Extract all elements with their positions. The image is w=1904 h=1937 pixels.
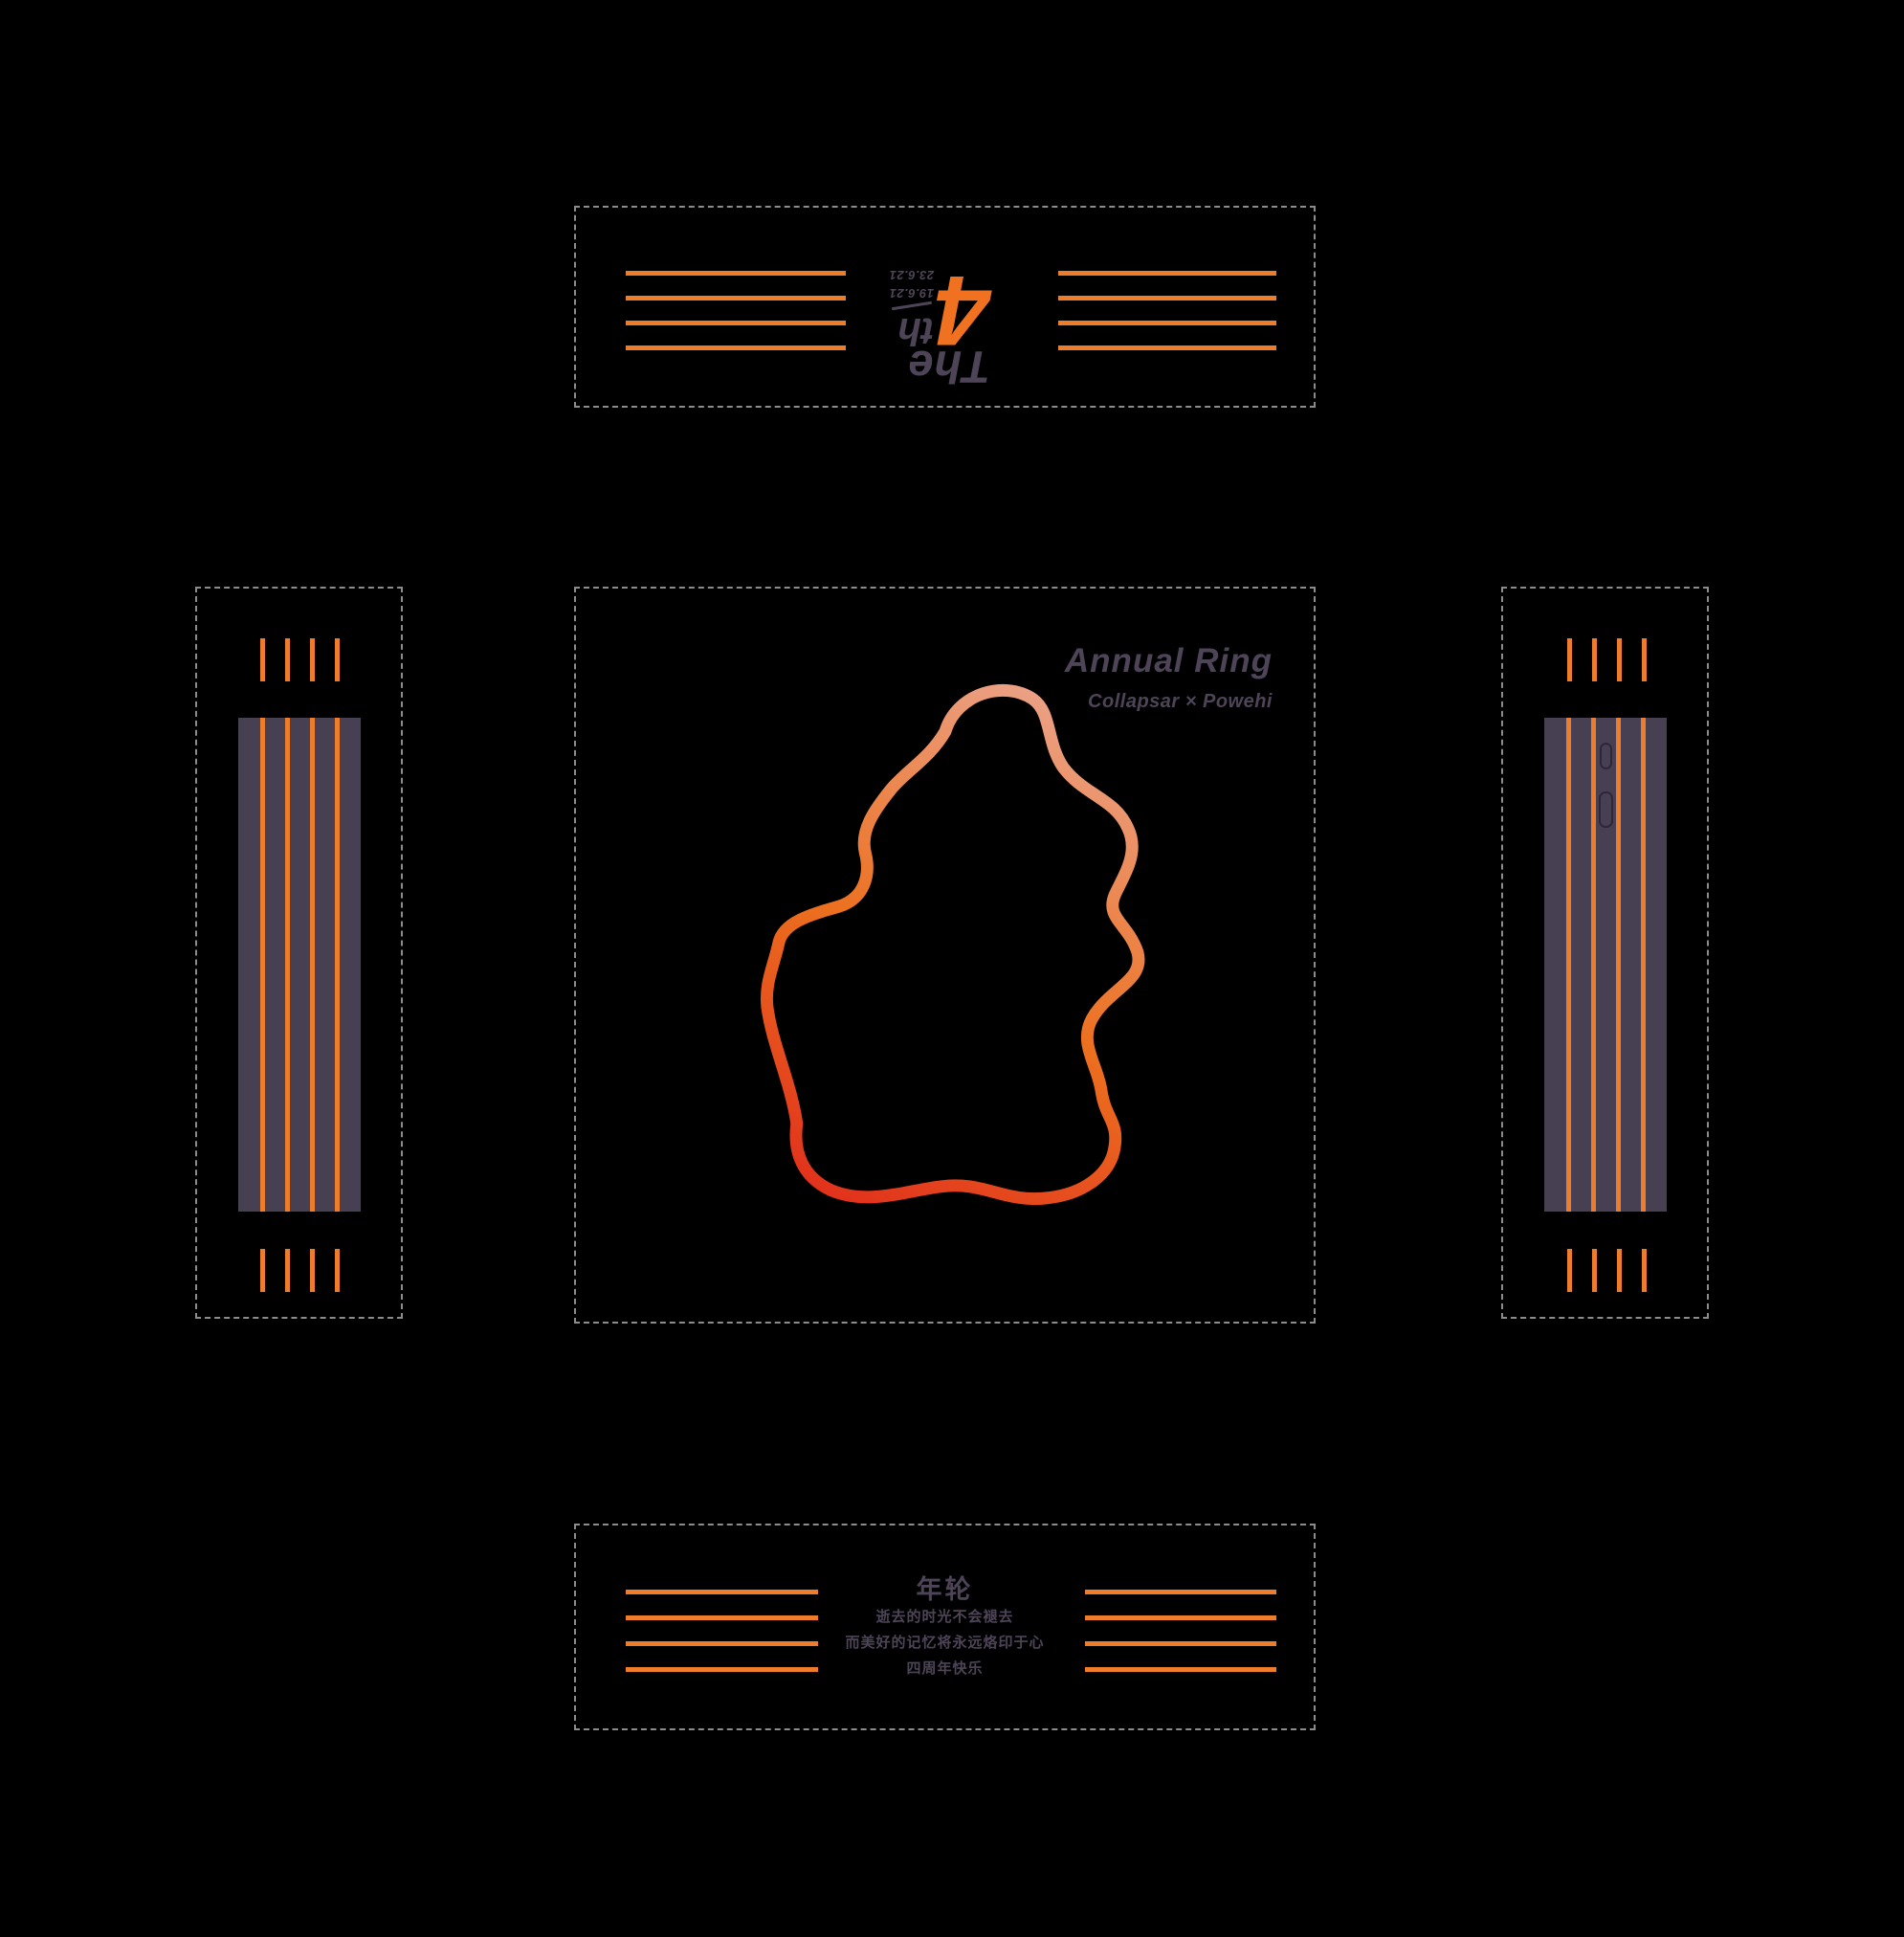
brand-block: The 4 th 19.6.21 23.6.21	[854, 229, 990, 390]
decorative-lines	[626, 271, 846, 350]
spine-bar	[238, 718, 361, 1212]
thumb-slot-large	[1599, 791, 1613, 828]
top-flap: The 4 th 19.6.21 23.6.21	[574, 206, 1316, 408]
tick-marks-bottom	[1567, 1249, 1647, 1292]
spine-stripes	[260, 718, 340, 1212]
artwork-subtitle: Collapsar × Powehi	[1065, 691, 1273, 713]
title-block: Annual Ring Collapsar × Powehi	[1065, 642, 1273, 713]
box-dieline: The 4 th 19.6.21 23.6.21	[0, 0, 1904, 1937]
date-from: 19.6.21	[889, 283, 934, 301]
message-line: 逝去的时光不会褪去	[576, 1604, 1314, 1630]
brand-dates-column: th 19.6.21 23.6.21	[889, 265, 934, 350]
front-panel: Annual Ring Collapsar × Powehi	[574, 587, 1316, 1324]
ring-path	[766, 690, 1139, 1198]
message-line: 四周年快乐	[576, 1656, 1314, 1681]
right-flap	[1501, 587, 1709, 1319]
thumb-slot-small	[1600, 743, 1612, 769]
message-title: 年轮	[576, 1575, 1314, 1604]
tick-marks-top	[1567, 638, 1647, 681]
left-flap	[195, 587, 403, 1319]
message-block: 年轮 逝去的时光不会褪去 而美好的记忆将永远烙印于心 四周年快乐	[576, 1575, 1314, 1681]
tick-marks-bottom	[260, 1249, 340, 1292]
tick-marks-top	[260, 638, 340, 681]
bottom-flap: 年轮 逝去的时光不会褪去 而美好的记忆将永远烙印于心 四周年快乐	[574, 1524, 1316, 1730]
date-to: 23.6.21	[889, 265, 934, 283]
artwork-title: Annual Ring	[1065, 642, 1273, 680]
brand-row: 4 th 19.6.21 23.6.21	[854, 265, 990, 350]
message-line: 而美好的记忆将永远烙印于心	[576, 1630, 1314, 1656]
date-divider	[892, 301, 932, 311]
brand-number: 4	[935, 265, 990, 350]
decorative-lines	[1058, 271, 1276, 350]
brand-ordinal: th	[889, 314, 934, 348]
